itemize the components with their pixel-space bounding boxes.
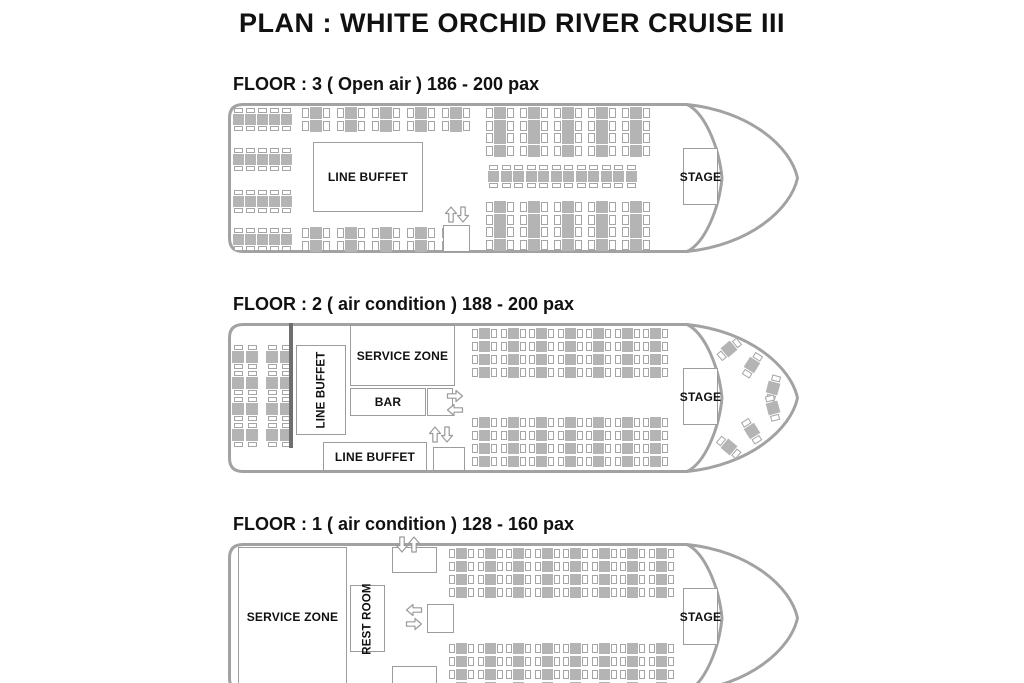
chair <box>506 575 512 584</box>
chair <box>506 644 512 653</box>
chair <box>592 657 598 666</box>
table-top <box>513 643 524 654</box>
chair <box>497 562 503 571</box>
dining-table <box>592 548 617 559</box>
chair <box>563 549 569 558</box>
dining-table <box>535 643 560 654</box>
stairwell-box <box>392 666 437 683</box>
table-top <box>627 574 638 585</box>
dining-table <box>506 669 531 680</box>
floor-1-tables <box>0 0 1024 683</box>
chair <box>649 644 655 653</box>
dining-table <box>620 587 645 598</box>
dining-table <box>649 669 674 680</box>
table-top <box>627 669 638 680</box>
dining-table <box>478 656 503 667</box>
stairwell-box <box>427 604 454 633</box>
chair <box>449 644 455 653</box>
stairwell-box <box>433 447 465 471</box>
chair <box>468 644 474 653</box>
table-top <box>627 548 638 559</box>
dining-table <box>563 643 588 654</box>
stairwell-box <box>443 225 470 252</box>
table-top <box>456 643 467 654</box>
chair <box>639 588 645 597</box>
chair <box>620 670 626 679</box>
table-top <box>627 587 638 598</box>
table-top <box>599 656 610 667</box>
chair <box>554 644 560 653</box>
table-top <box>599 587 610 598</box>
dining-table <box>535 574 560 585</box>
chair <box>525 670 531 679</box>
table-top <box>656 643 667 654</box>
dining-table <box>449 656 474 667</box>
dining-table <box>649 656 674 667</box>
dining-table <box>620 669 645 680</box>
chair <box>611 670 617 679</box>
dining-table <box>592 574 617 585</box>
chair <box>525 644 531 653</box>
dining-table <box>478 561 503 572</box>
chair <box>639 575 645 584</box>
dining-table <box>449 643 474 654</box>
chair <box>468 562 474 571</box>
chair <box>525 549 531 558</box>
table-top <box>485 548 496 559</box>
dining-table <box>506 643 531 654</box>
chair <box>592 549 598 558</box>
dining-table <box>478 587 503 598</box>
table-top <box>485 643 496 654</box>
table-top <box>542 561 553 572</box>
chair <box>554 549 560 558</box>
dining-table <box>620 656 645 667</box>
dining-table <box>620 561 645 572</box>
chair <box>592 575 598 584</box>
table-top <box>513 669 524 680</box>
table-top <box>456 587 467 598</box>
chair <box>639 670 645 679</box>
chair <box>449 575 455 584</box>
chair <box>535 575 541 584</box>
line-buffet-zone: LINE BUFFET <box>296 345 346 435</box>
table-top <box>599 574 610 585</box>
divider-wall <box>289 323 293 448</box>
dining-table <box>535 669 560 680</box>
chair <box>668 575 674 584</box>
chair <box>611 575 617 584</box>
dining-table <box>649 643 674 654</box>
dining-table <box>592 643 617 654</box>
chair <box>611 562 617 571</box>
chair <box>506 562 512 571</box>
dining-table <box>506 548 531 559</box>
chair <box>449 588 455 597</box>
chair <box>582 670 588 679</box>
chair <box>525 562 531 571</box>
table-top <box>513 587 524 598</box>
floor-3-label: FLOOR : 3 ( Open air ) 186 - 200 pax <box>233 74 539 95</box>
dining-table <box>449 548 474 559</box>
table-top <box>456 574 467 585</box>
stairs-icon <box>428 426 454 443</box>
table-top <box>456 656 467 667</box>
floor-1-label: FLOOR : 1 ( air condition ) 128 - 160 pa… <box>233 514 574 535</box>
deck-plan-canvas: PLAN : WHITE ORCHID RIVER CRUISE III FLO… <box>0 0 1024 683</box>
table-top <box>485 656 496 667</box>
chair <box>563 644 569 653</box>
chair <box>554 670 560 679</box>
table-top <box>599 548 610 559</box>
dining-table <box>563 561 588 572</box>
chair <box>478 562 484 571</box>
chair <box>639 657 645 666</box>
chair <box>535 588 541 597</box>
chair <box>535 549 541 558</box>
chair <box>620 657 626 666</box>
table-top <box>570 574 581 585</box>
table-top <box>542 587 553 598</box>
line-buffet-zone: LINE BUFFET <box>313 142 423 212</box>
chair <box>649 575 655 584</box>
chair <box>592 670 598 679</box>
dining-table <box>592 587 617 598</box>
chair <box>478 549 484 558</box>
table-top <box>542 643 553 654</box>
table-top <box>599 561 610 572</box>
table-top <box>456 548 467 559</box>
chair <box>449 549 455 558</box>
chair <box>592 588 598 597</box>
chair <box>506 549 512 558</box>
chair <box>506 588 512 597</box>
dining-table <box>535 656 560 667</box>
dining-table <box>449 561 474 572</box>
chair <box>563 588 569 597</box>
service-zone: SERVICE ZONE <box>350 325 455 386</box>
dining-table <box>592 656 617 667</box>
dining-table <box>620 574 645 585</box>
chair <box>563 575 569 584</box>
chair <box>620 549 626 558</box>
dining-table <box>449 669 474 680</box>
table-top <box>485 587 496 598</box>
table-top <box>456 669 467 680</box>
chair <box>468 588 474 597</box>
dining-table <box>478 643 503 654</box>
stairs-icon <box>448 389 462 419</box>
chair <box>649 670 655 679</box>
line-buffet-zone: LINE BUFFET <box>323 442 427 471</box>
chair <box>497 657 503 666</box>
chair <box>563 670 569 679</box>
chair <box>468 657 474 666</box>
chair <box>620 644 626 653</box>
dining-table <box>478 548 503 559</box>
chair <box>535 644 541 653</box>
table-top <box>513 656 524 667</box>
chair <box>478 644 484 653</box>
dining-table <box>620 548 645 559</box>
chair <box>468 575 474 584</box>
chair <box>535 657 541 666</box>
chair <box>592 644 598 653</box>
table-top <box>599 643 610 654</box>
chair <box>563 657 569 666</box>
chair <box>497 549 503 558</box>
chair <box>468 670 474 679</box>
floor-2-label: FLOOR : 2 ( air condition ) 188 - 200 pa… <box>233 294 574 315</box>
chair <box>620 575 626 584</box>
table-top <box>656 656 667 667</box>
table-top <box>513 548 524 559</box>
bar-zone: BAR <box>350 388 426 416</box>
dining-table <box>649 574 674 585</box>
chair <box>554 562 560 571</box>
dining-table <box>649 561 674 572</box>
chair <box>639 644 645 653</box>
chair <box>611 549 617 558</box>
table-top <box>542 656 553 667</box>
chair <box>478 575 484 584</box>
table-top <box>456 561 467 572</box>
table-top <box>656 587 667 598</box>
chair <box>668 549 674 558</box>
chair <box>649 588 655 597</box>
chair <box>525 657 531 666</box>
chair <box>506 670 512 679</box>
table-top <box>599 669 610 680</box>
chair <box>639 549 645 558</box>
dining-table <box>592 561 617 572</box>
stairs-icon <box>395 536 421 553</box>
dining-table <box>620 643 645 654</box>
dining-table <box>535 561 560 572</box>
table-top <box>570 587 581 598</box>
chair <box>497 644 503 653</box>
chair <box>554 588 560 597</box>
table-top <box>485 669 496 680</box>
chair <box>592 562 598 571</box>
table-top <box>570 643 581 654</box>
chair <box>478 670 484 679</box>
rest-room-zone: REST ROOM <box>350 585 385 652</box>
chair <box>535 562 541 571</box>
dining-table <box>535 548 560 559</box>
chair <box>449 562 455 571</box>
stairs-icon <box>407 603 421 633</box>
chair <box>668 644 674 653</box>
table-top <box>542 548 553 559</box>
chair <box>649 657 655 666</box>
stage-zone: STAGE <box>683 368 718 425</box>
table-top <box>485 574 496 585</box>
chair <box>639 562 645 571</box>
table-top <box>513 561 524 572</box>
chair <box>582 549 588 558</box>
chair <box>582 588 588 597</box>
table-top <box>570 669 581 680</box>
table-top <box>656 561 667 572</box>
chair <box>478 588 484 597</box>
table-top <box>542 574 553 585</box>
stage-zone: STAGE <box>683 148 718 205</box>
chair <box>449 670 455 679</box>
chair <box>554 657 560 666</box>
dining-table <box>563 656 588 667</box>
service-zone: SERVICE ZONE <box>238 547 347 683</box>
chair <box>582 644 588 653</box>
chair <box>611 588 617 597</box>
chair <box>668 588 674 597</box>
chair <box>668 562 674 571</box>
dining-table <box>563 574 588 585</box>
table-top <box>627 561 638 572</box>
table-top <box>570 656 581 667</box>
chair <box>478 657 484 666</box>
table-top <box>656 669 667 680</box>
chair <box>668 670 674 679</box>
dining-table <box>563 548 588 559</box>
dining-table <box>506 574 531 585</box>
dining-table <box>506 561 531 572</box>
stairs-icon <box>444 206 470 223</box>
chair <box>497 588 503 597</box>
table-top <box>570 561 581 572</box>
dining-table <box>563 669 588 680</box>
table-top <box>542 669 553 680</box>
dining-table <box>535 587 560 598</box>
table-top <box>513 574 524 585</box>
dining-table <box>449 587 474 598</box>
table-top <box>627 656 638 667</box>
dining-table <box>649 548 674 559</box>
chair <box>582 562 588 571</box>
table-top <box>570 548 581 559</box>
table-top <box>627 643 638 654</box>
chair <box>649 549 655 558</box>
chair <box>668 657 674 666</box>
dining-table <box>478 574 503 585</box>
chair <box>563 562 569 571</box>
dining-table <box>478 669 503 680</box>
chair <box>620 588 626 597</box>
chair <box>582 657 588 666</box>
stage-zone: STAGE <box>683 588 718 645</box>
chair <box>611 657 617 666</box>
chair <box>554 575 560 584</box>
dining-table <box>592 669 617 680</box>
table-top <box>656 574 667 585</box>
chair <box>506 657 512 666</box>
dining-table <box>506 656 531 667</box>
chair <box>497 575 503 584</box>
chair <box>649 562 655 571</box>
dining-table <box>449 574 474 585</box>
chair <box>582 575 588 584</box>
chair <box>468 549 474 558</box>
dining-table <box>563 587 588 598</box>
table-top <box>656 548 667 559</box>
chair <box>525 575 531 584</box>
chair <box>497 670 503 679</box>
chair <box>449 657 455 666</box>
chair <box>525 588 531 597</box>
chair <box>620 562 626 571</box>
plan-title: PLAN : WHITE ORCHID RIVER CRUISE III <box>0 8 1024 39</box>
table-top <box>485 561 496 572</box>
dining-table <box>506 587 531 598</box>
dining-table <box>649 587 674 598</box>
chair <box>611 644 617 653</box>
chair <box>535 670 541 679</box>
